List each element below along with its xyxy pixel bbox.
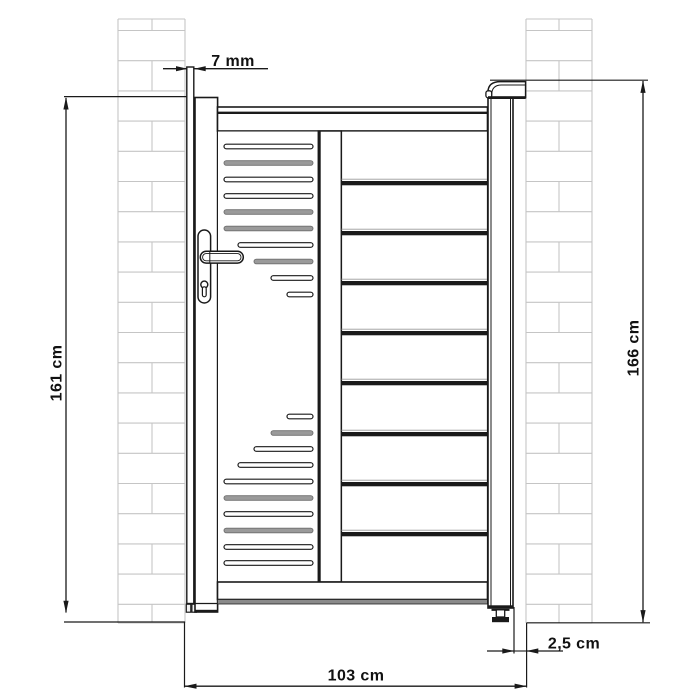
left-stile-bottom-band <box>195 610 218 612</box>
board-panel <box>342 131 488 582</box>
technical-drawing: 7 mm 161 cm 166 cm 103 cm 2,5 cm <box>0 0 700 700</box>
slat <box>287 414 313 419</box>
slat <box>238 243 313 248</box>
slat <box>224 161 313 166</box>
center-stile <box>318 131 341 582</box>
board-divider <box>342 432 488 436</box>
board-divider <box>342 381 488 385</box>
dim-frame-gap-label: 7 mm <box>211 53 254 70</box>
slat <box>224 496 313 501</box>
dim-wall-clearance-label: 2,5 cm <box>548 636 600 653</box>
post-cap <box>488 82 526 98</box>
latch-post-bottom-band <box>488 605 513 608</box>
post-foot-base <box>492 617 509 622</box>
slat <box>254 259 313 264</box>
slat <box>224 210 313 215</box>
slat <box>224 144 313 149</box>
board-divider <box>342 181 488 185</box>
board-divider <box>342 532 488 536</box>
slat <box>271 276 313 281</box>
slat <box>224 512 313 517</box>
handle-lever <box>200 251 243 263</box>
slat <box>271 431 313 436</box>
left-stile <box>195 98 218 613</box>
board-divider <box>342 331 488 335</box>
slat <box>287 292 313 297</box>
drawing-canvas: 7 mm 161 cm 166 cm 103 cm 2,5 cm <box>0 0 700 700</box>
post-foot-stem <box>496 610 504 617</box>
bottom-rail-shadow <box>218 600 488 605</box>
board-divider <box>342 281 488 285</box>
post-cap-bottom-band <box>488 96 526 99</box>
top-rail <box>218 107 488 131</box>
hinge-foot-left <box>186 604 191 612</box>
slat <box>224 194 313 199</box>
latch-post <box>488 98 513 608</box>
slat <box>254 447 313 452</box>
board-divider <box>342 231 488 235</box>
slat <box>224 545 313 550</box>
keyhole-slot-icon <box>202 287 206 297</box>
slat <box>224 177 313 182</box>
slat <box>224 479 313 484</box>
hinge-profile <box>187 67 194 604</box>
slat <box>224 226 313 231</box>
dim-post-height-label: 166 cm <box>626 320 643 377</box>
bottom-rail <box>218 582 488 600</box>
dim-total-width-label: 103 cm <box>328 668 385 685</box>
gate-assembly <box>186 67 525 622</box>
board-divider <box>342 482 488 486</box>
slat <box>224 561 313 566</box>
slat <box>224 528 313 533</box>
dim-gate-height-label: 161 cm <box>49 345 66 402</box>
slat <box>238 463 313 468</box>
